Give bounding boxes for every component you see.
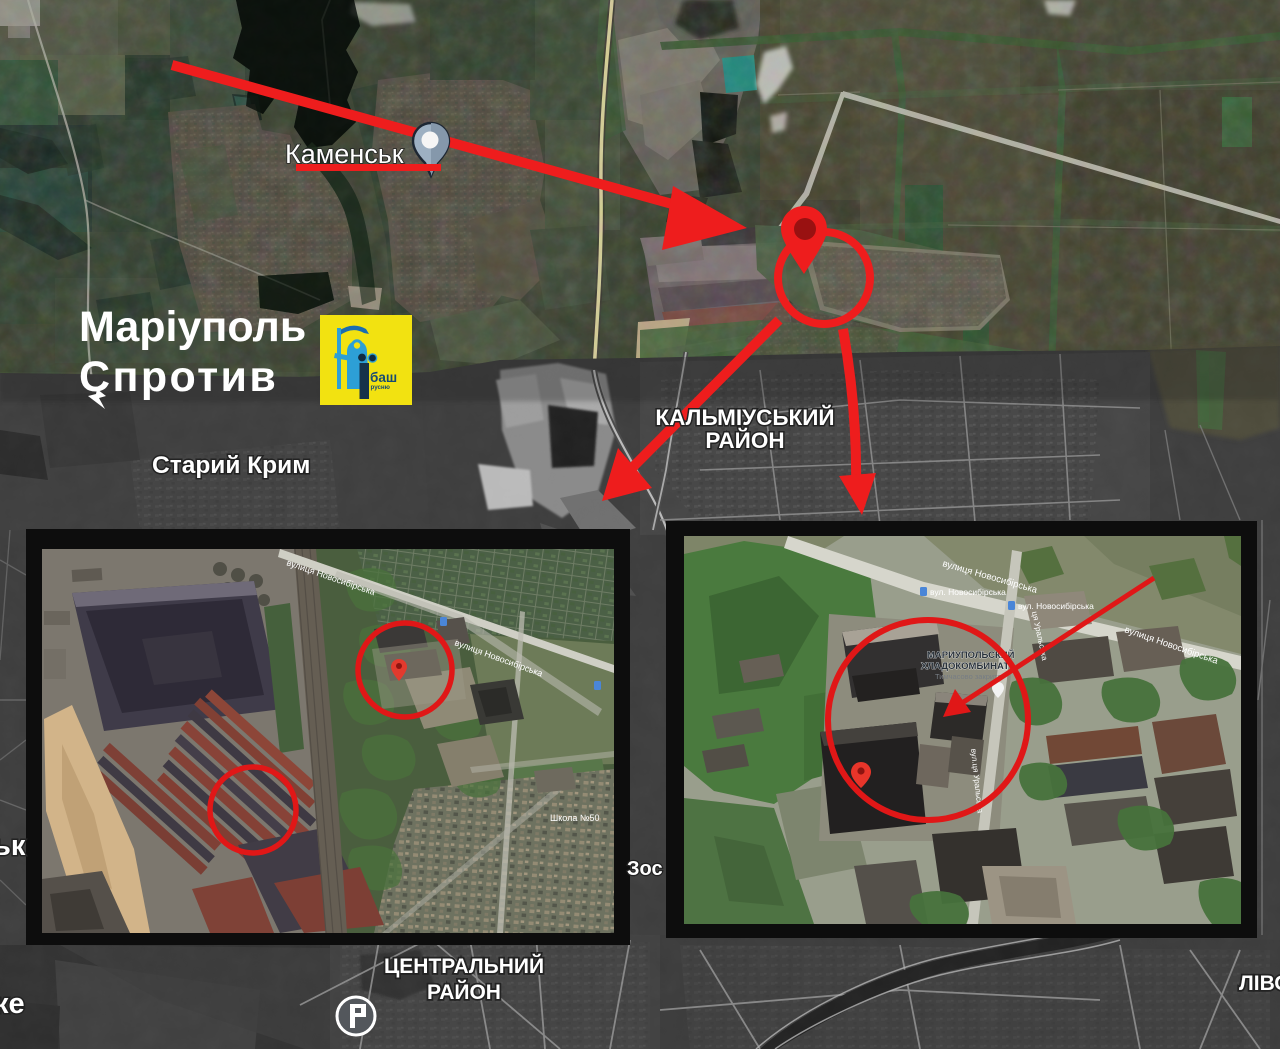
svg-text:ке: ке — [0, 988, 25, 1020]
svg-text:ьк: ьк — [0, 830, 26, 862]
svg-text:баш: баш — [370, 370, 397, 385]
svg-text:ЦЕНТРАЛЬНИЙ: ЦЕНТРАЛЬНИЙ — [384, 954, 544, 978]
svg-text:ЛІВОБ: ЛІВОБ — [1239, 972, 1280, 995]
svg-text:вул. Новосибірська: вул. Новосибірська — [1018, 601, 1094, 611]
svg-text:русню: русню — [371, 384, 391, 391]
svg-text:ХЛАДОКОМБИНАТ: ХЛАДОКОМБИНАТ — [921, 661, 1009, 672]
svg-text:КАЛЬМІУСЬКИЙ: КАЛЬМІУСЬКИЙ — [655, 405, 834, 430]
svg-text:вул. Новосибірська: вул. Новосибірська — [930, 587, 1006, 597]
svg-text:РАЙОН: РАЙОН — [705, 428, 784, 453]
svg-text:РАЙОН: РАЙОН — [427, 980, 501, 1004]
svg-text:Зос: Зос — [627, 858, 663, 880]
svg-text:Школа №50: Школа №50 — [550, 813, 600, 823]
svg-text:Старий Крим: Старий Крим — [152, 452, 310, 479]
svg-text:Тимчасово закрито: Тимчасово закрито — [935, 672, 1002, 681]
svg-text:Маріуполь: Маріуполь — [79, 303, 306, 351]
svg-text:Спротив: Спротив — [79, 353, 278, 401]
